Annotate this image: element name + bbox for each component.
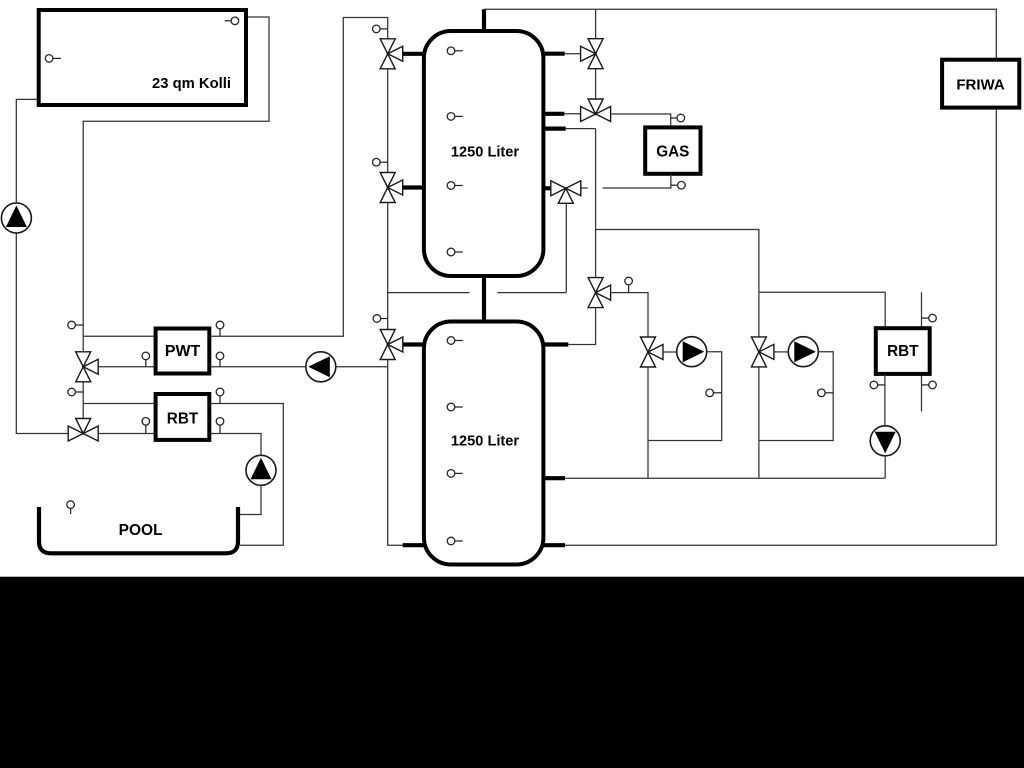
svg-text:GAS: GAS (656, 143, 689, 160)
svg-text:FRIWA: FRIWA (956, 76, 1004, 93)
svg-text:POOL: POOL (119, 522, 163, 539)
svg-text:1250 Liter: 1250 Liter (451, 434, 519, 450)
svg-text:RBT: RBT (887, 343, 919, 360)
svg-text:23 qm Kolli: 23 qm Kolli (152, 76, 231, 92)
svg-text:PWT: PWT (165, 343, 201, 360)
svg-text:1250 Liter: 1250 Liter (451, 145, 519, 161)
svg-text:RBT: RBT (167, 411, 199, 428)
